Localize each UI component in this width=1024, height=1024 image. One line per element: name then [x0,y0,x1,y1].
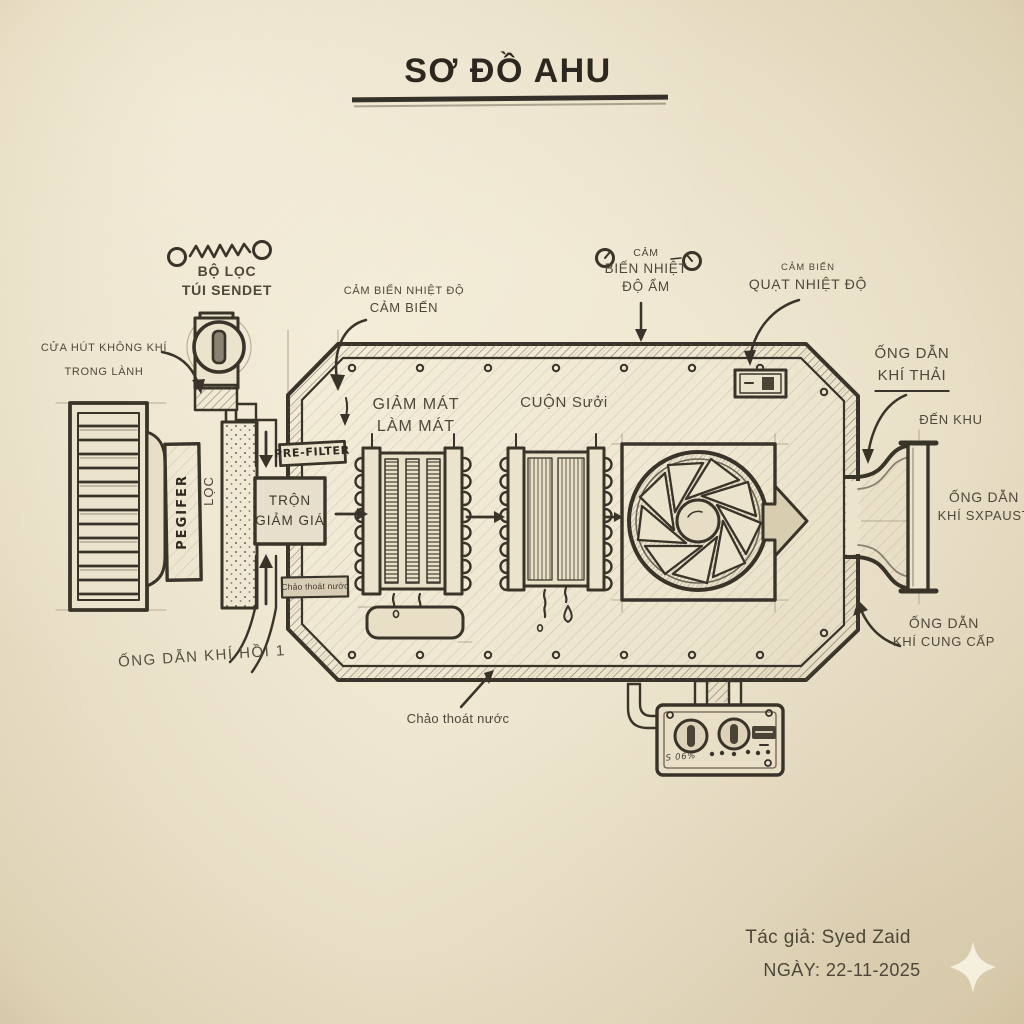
label-line: GIẢM MÁT [372,394,459,416]
ahu-sketch [0,0,1024,1024]
humidity-sensor-label: CẢM BIẾN NHIỆT ĐỘ ẨM [605,246,688,297]
sparkle-icon [950,941,996,993]
cooling-coil-icon [355,434,470,638]
label-line: TRONG LÀNH [41,360,167,384]
fresh-air-label: CỬA HÚT KHÔNG KHÍ TRONG LÀNH [41,336,167,384]
exhaust-air-duct-label: ỐNG DẪN KHÍ SXPAUST [938,488,1024,524]
filter-panel-label: PEGIFER [174,474,192,550]
date-credit: NGÀY: 22-11-2025 [763,960,920,981]
label-line: TÚI SENDET [182,281,272,300]
label-line: CẢM BIẾN [749,262,867,275]
exhaust-duct-label: ỐNG DẪN KHÍ THẢI [875,343,950,392]
to-zone-label: ĐẾN KHU [919,411,982,429]
filter-word-label: LỌC [200,476,218,506]
bag-filter-label: BỘ LỌC TÚI SENDET [182,262,272,300]
label-line: KHÍ CUNG CẤP [893,633,995,651]
label-line: ỐNG DẪN [893,614,995,633]
fan-sensor-box-icon [735,370,786,397]
drain-pan-label: Chảo thoát nước [407,710,510,728]
label-line: LÀM MÁT [372,416,459,438]
fan-sensor-label: CẢM BIẾN QUẠT NHIỆT ĐỘ [749,262,867,294]
temp-sensor-label: CẢM BIẾN NHIỆT ĐỘ CẢM BIẾN [344,284,465,316]
blueprint-page: SƠ ĐỒ AHU BỘ LỌC TÚI SENDET CỬA HÚT KHÔN… [0,0,1024,1024]
label-line: BỘ LỌC [182,262,272,281]
bag-filter-damper-icon [194,313,244,422]
label-line: BIẾN NHIỆT [605,260,688,278]
label-line: CẢM BIẾN NHIỆT ĐỘ [344,284,465,299]
author-credit: Tác giả: Syed Zaid [745,927,911,949]
louver-intake-icon [70,403,165,610]
duct-flange [908,443,928,591]
supply-air-duct-label: ỐNG DẪN KHÍ CUNG CẤP [893,614,995,650]
label-line: ỐNG DẪN [938,488,1024,507]
mixing-box-label: TRỘN GIẢM GIÁ [255,491,325,532]
label-line: CỬA HÚT KHÔNG KHÍ [41,336,167,360]
label-line: GIẢM GIÁ [255,511,325,531]
label-line: CẢM [605,246,688,260]
heating-coil-label: CUỘN Sưởi [520,393,608,413]
drain-pan-tag: Chảo thoát nước [281,581,348,594]
label-line: KHÍ THẢI [875,365,950,392]
page-title: SƠ ĐỒ AHU [404,49,611,95]
label-line: ĐỘ ẨM [605,278,688,296]
cooling-coil-label: GIẢM MÁT LÀM MÁT [372,394,459,437]
label-line: TRỘN [255,491,325,511]
label-line: QUẠT NHIỆT ĐỘ [749,275,867,294]
label-line: ỐNG DẪN [875,343,950,365]
label-line: CẢM BIẾN [344,299,465,317]
label-line: KHÍ SXPAUST [938,507,1024,525]
control-panel-icon [628,681,783,775]
